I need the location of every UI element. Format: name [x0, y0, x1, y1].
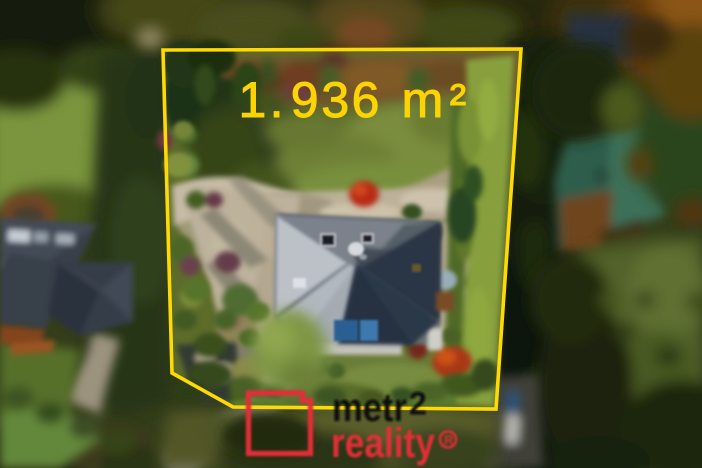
- svg-text:R: R: [444, 433, 454, 448]
- svg-text:2: 2: [409, 386, 427, 422]
- svg-text:²: ²: [450, 74, 467, 130]
- svg-text:reality: reality: [331, 419, 436, 466]
- svg-text:1.936 m: 1.936 m: [239, 72, 444, 128]
